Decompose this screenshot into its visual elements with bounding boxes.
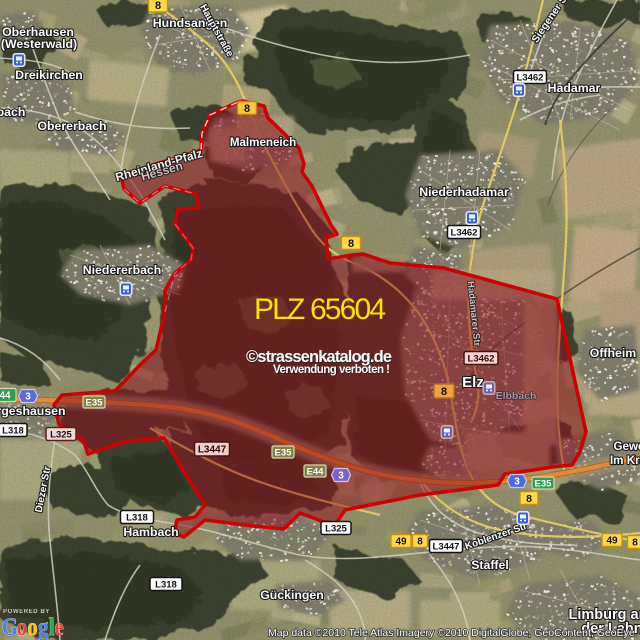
svg-text:Elbbach: Elbbach xyxy=(496,390,537,402)
svg-text:o: o xyxy=(27,613,37,640)
svg-text:o: o xyxy=(17,613,27,640)
svg-text:L325: L325 xyxy=(50,429,72,440)
svg-text:Gewe: Gewe xyxy=(614,440,640,453)
svg-text:Hambach: Hambach xyxy=(123,525,178,539)
svg-text:8: 8 xyxy=(155,0,161,12)
svg-text:49: 49 xyxy=(606,536,618,547)
svg-text:L3462: L3462 xyxy=(468,353,495,364)
svg-text:E44: E44 xyxy=(307,466,325,477)
svg-text:bach: bach xyxy=(0,105,25,119)
svg-text:49: 49 xyxy=(395,537,407,548)
svg-text:E35: E35 xyxy=(275,447,293,458)
svg-text:8: 8 xyxy=(441,386,447,398)
svg-text:Niedererbach: Niedererbach xyxy=(83,263,162,277)
svg-text:rgeshausen: rgeshausen xyxy=(0,404,66,418)
svg-text:8: 8 xyxy=(348,238,354,250)
svg-text:Malmeneich: Malmeneich xyxy=(230,136,296,149)
svg-text:E35: E35 xyxy=(535,478,553,489)
svg-text:3: 3 xyxy=(514,477,520,488)
svg-text:L325: L325 xyxy=(325,523,347,534)
svg-text:(Westerwald): (Westerwald) xyxy=(1,37,77,51)
svg-text:L3447: L3447 xyxy=(198,445,227,456)
svg-text:Map data ©2010 Tele Atlas Ima: Map data ©2010 Tele Atlas Imagery ©2010 … xyxy=(268,627,635,639)
svg-text:Offheim: Offheim xyxy=(590,346,637,360)
svg-text:L318: L318 xyxy=(2,425,24,436)
svg-text:Niederhadamar: Niederhadamar xyxy=(419,185,509,199)
svg-text:Hadamar: Hadamar xyxy=(548,81,601,95)
svg-text:Verwendung verboten !: Verwendung verboten ! xyxy=(273,364,390,376)
svg-text:l: l xyxy=(49,613,55,640)
svg-text:G: G xyxy=(2,613,18,640)
svg-text:44: 44 xyxy=(0,391,11,402)
svg-text:Im Kra: Im Kra xyxy=(610,454,640,467)
svg-text:8: 8 xyxy=(244,103,250,115)
svg-text:Elz: Elz xyxy=(462,374,484,391)
svg-text:3: 3 xyxy=(338,471,344,482)
svg-text:8: 8 xyxy=(526,493,532,505)
svg-text:3: 3 xyxy=(25,392,31,403)
svg-text:8: 8 xyxy=(632,538,638,549)
svg-text:PLZ 65604: PLZ 65604 xyxy=(254,293,386,326)
svg-text:E35: E35 xyxy=(86,397,104,408)
svg-text:L3447: L3447 xyxy=(433,541,460,552)
svg-text:g: g xyxy=(38,613,49,640)
svg-text:L3462: L3462 xyxy=(451,227,478,238)
svg-text:L3462: L3462 xyxy=(517,72,544,83)
svg-text:L318: L318 xyxy=(126,512,148,523)
svg-text:L318: L318 xyxy=(155,579,177,590)
svg-text:e: e xyxy=(54,613,63,640)
svg-text:Staffel: Staffel xyxy=(471,558,509,572)
svg-text:8: 8 xyxy=(417,537,423,548)
svg-text:Dreikirchen: Dreikirchen xyxy=(15,68,83,82)
svg-text:Obererbach: Obererbach xyxy=(37,119,106,133)
svg-text:Gückingen: Gückingen xyxy=(260,588,324,602)
